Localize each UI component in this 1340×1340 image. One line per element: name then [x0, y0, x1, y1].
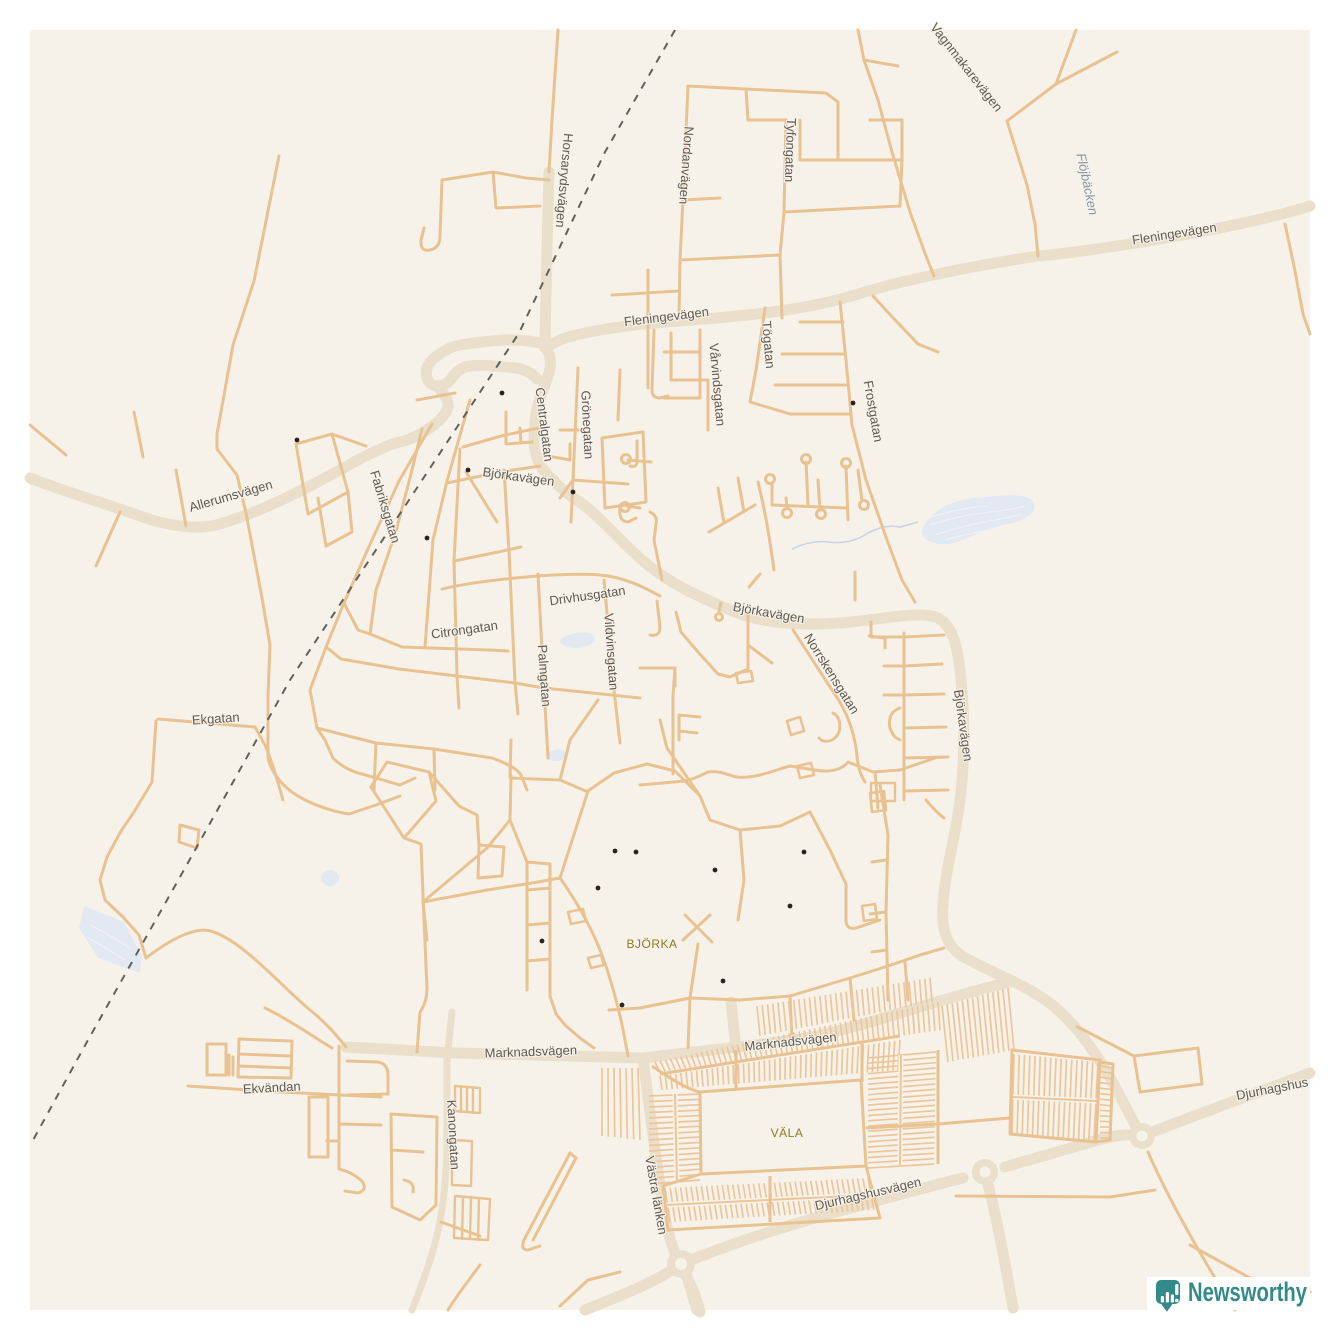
svg-text:Tyfongatan: Tyfongatan	[782, 118, 799, 183]
svg-text:BJÖRKA: BJÖRKA	[626, 937, 677, 951]
svg-text:Ekvändan: Ekvändan	[242, 1079, 301, 1097]
svg-text:Newsworthy: Newsworthy	[1188, 1277, 1307, 1307]
svg-text:VÄLA: VÄLA	[771, 1126, 804, 1140]
